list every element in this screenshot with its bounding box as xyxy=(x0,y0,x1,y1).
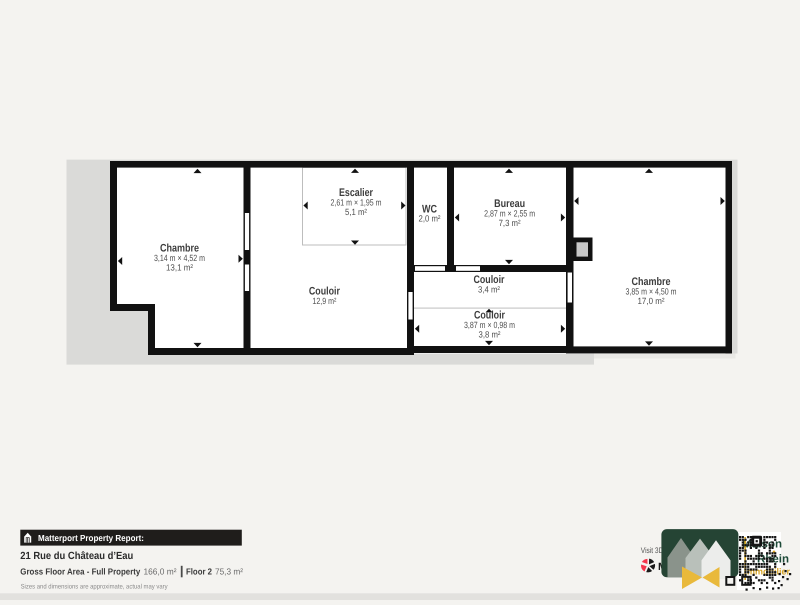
svg-text:21 Rue du Château d’Eau: 21 Rue du Château d’Eau xyxy=(20,551,133,562)
svg-text:Matterport Property Report:: Matterport Property Report: xyxy=(38,533,144,543)
svg-text:75,3 m²: 75,3 m² xyxy=(215,567,243,577)
svg-text:5,1 m²: 5,1 m² xyxy=(345,207,367,217)
svg-text:12,9 m²: 12,9 m² xyxy=(312,296,336,306)
svg-text:2,0 m²: 2,0 m² xyxy=(419,214,441,224)
svg-text:13,1 m²: 13,1 m² xyxy=(166,263,193,273)
svg-text:Sizes and dimensions are appro: Sizes and dimensions are approximate, ac… xyxy=(21,584,169,591)
svg-text:7,3 m²: 7,3 m² xyxy=(499,218,521,228)
svg-text:Gross Floor Area - Full Proper: Gross Floor Area - Full Property xyxy=(20,567,140,577)
svg-text:3,4 m²: 3,4 m² xyxy=(478,284,500,294)
svg-text:3,8 m²: 3,8 m² xyxy=(479,330,501,340)
svg-text:166,0 m²: 166,0 m² xyxy=(144,567,177,577)
svg-text:17,0 m²: 17,0 m² xyxy=(638,296,665,306)
svg-text:Floor 2: Floor 2 xyxy=(186,567,212,577)
